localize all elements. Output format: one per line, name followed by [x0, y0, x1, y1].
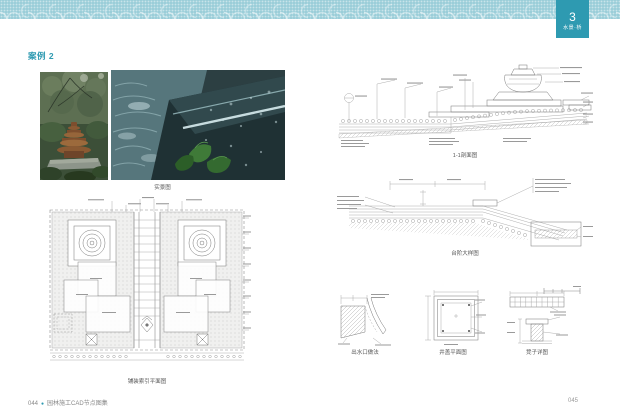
outlet-detail-drawing: [337, 292, 393, 353]
well-plan-drawing: [420, 290, 486, 353]
case-label: 案例 2: [28, 50, 54, 62]
well-caption: 井盖平面图: [420, 348, 486, 356]
footer-dot: ●: [41, 401, 44, 407]
photo-caption: 实景图: [40, 183, 285, 191]
section-caption: 1-1剖面图: [335, 151, 595, 159]
photo-water-table: [111, 70, 285, 180]
section-1-1-drawing: [333, 60, 595, 155]
chapter-title: 水景·桥: [556, 25, 589, 31]
step-detail-drawing: [335, 176, 595, 253]
photo-garden-fountain: [40, 72, 108, 180]
chapter-number: 3: [556, 11, 589, 23]
plan-caption: 铺装索引平面图: [42, 377, 252, 385]
chapter-tab: 3 水景·桥: [556, 0, 589, 38]
book-spread: 3 水景·桥 案例 2: [0, 0, 620, 420]
paving-index-plan-drawing: [42, 196, 252, 379]
book-title: 园林施工CAD节点图集: [47, 401, 108, 407]
right-page-number: 045: [568, 398, 578, 404]
bench-caption: 凳子详图: [506, 348, 568, 356]
step-caption: 台阶大样图: [335, 249, 595, 257]
left-page-number: 044: [28, 401, 38, 407]
footer-left: 044●园林施工CAD节点图集: [28, 398, 108, 407]
outlet-caption: 出水口做法: [337, 348, 393, 356]
bench-detail-drawing: [506, 290, 568, 353]
wave-pattern-band: [0, 0, 620, 19]
